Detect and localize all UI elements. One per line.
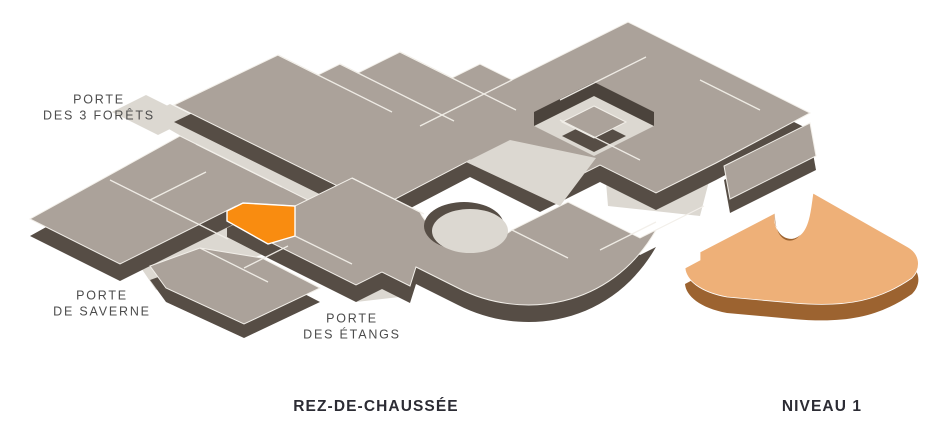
mall-map-page: PORTE DES 3 FORÊTS PORTE DE SAVERNE PORT… [0, 0, 926, 425]
floor-label-rez-de-chaussee: REZ-DE-CHAUSSÉE [293, 398, 458, 416]
floor-label-niveau-1: NIVEAU 1 [782, 398, 862, 416]
level1-shape[interactable] [685, 193, 918, 320]
entrance-label-line1: PORTE [43, 92, 155, 108]
entrance-label-etangs: PORTE DES ÉTANGS [303, 311, 401, 342]
isometric-mall-map [0, 0, 926, 425]
entrance-label-line1: PORTE [53, 288, 151, 304]
entrance-label-3-forets: PORTE DES 3 FORÊTS [43, 92, 155, 123]
entrance-label-line2: DE SAVERNE [53, 304, 151, 320]
level1-top [685, 193, 918, 304]
entrance-label-line2: DES 3 FORÊTS [43, 108, 155, 124]
entrance-label-line2: DES ÉTANGS [303, 327, 401, 343]
entrance-label-saverne: PORTE DE SAVERNE [53, 288, 151, 319]
entrance-label-line1: PORTE [303, 311, 401, 327]
circle-court-floor [432, 209, 508, 253]
